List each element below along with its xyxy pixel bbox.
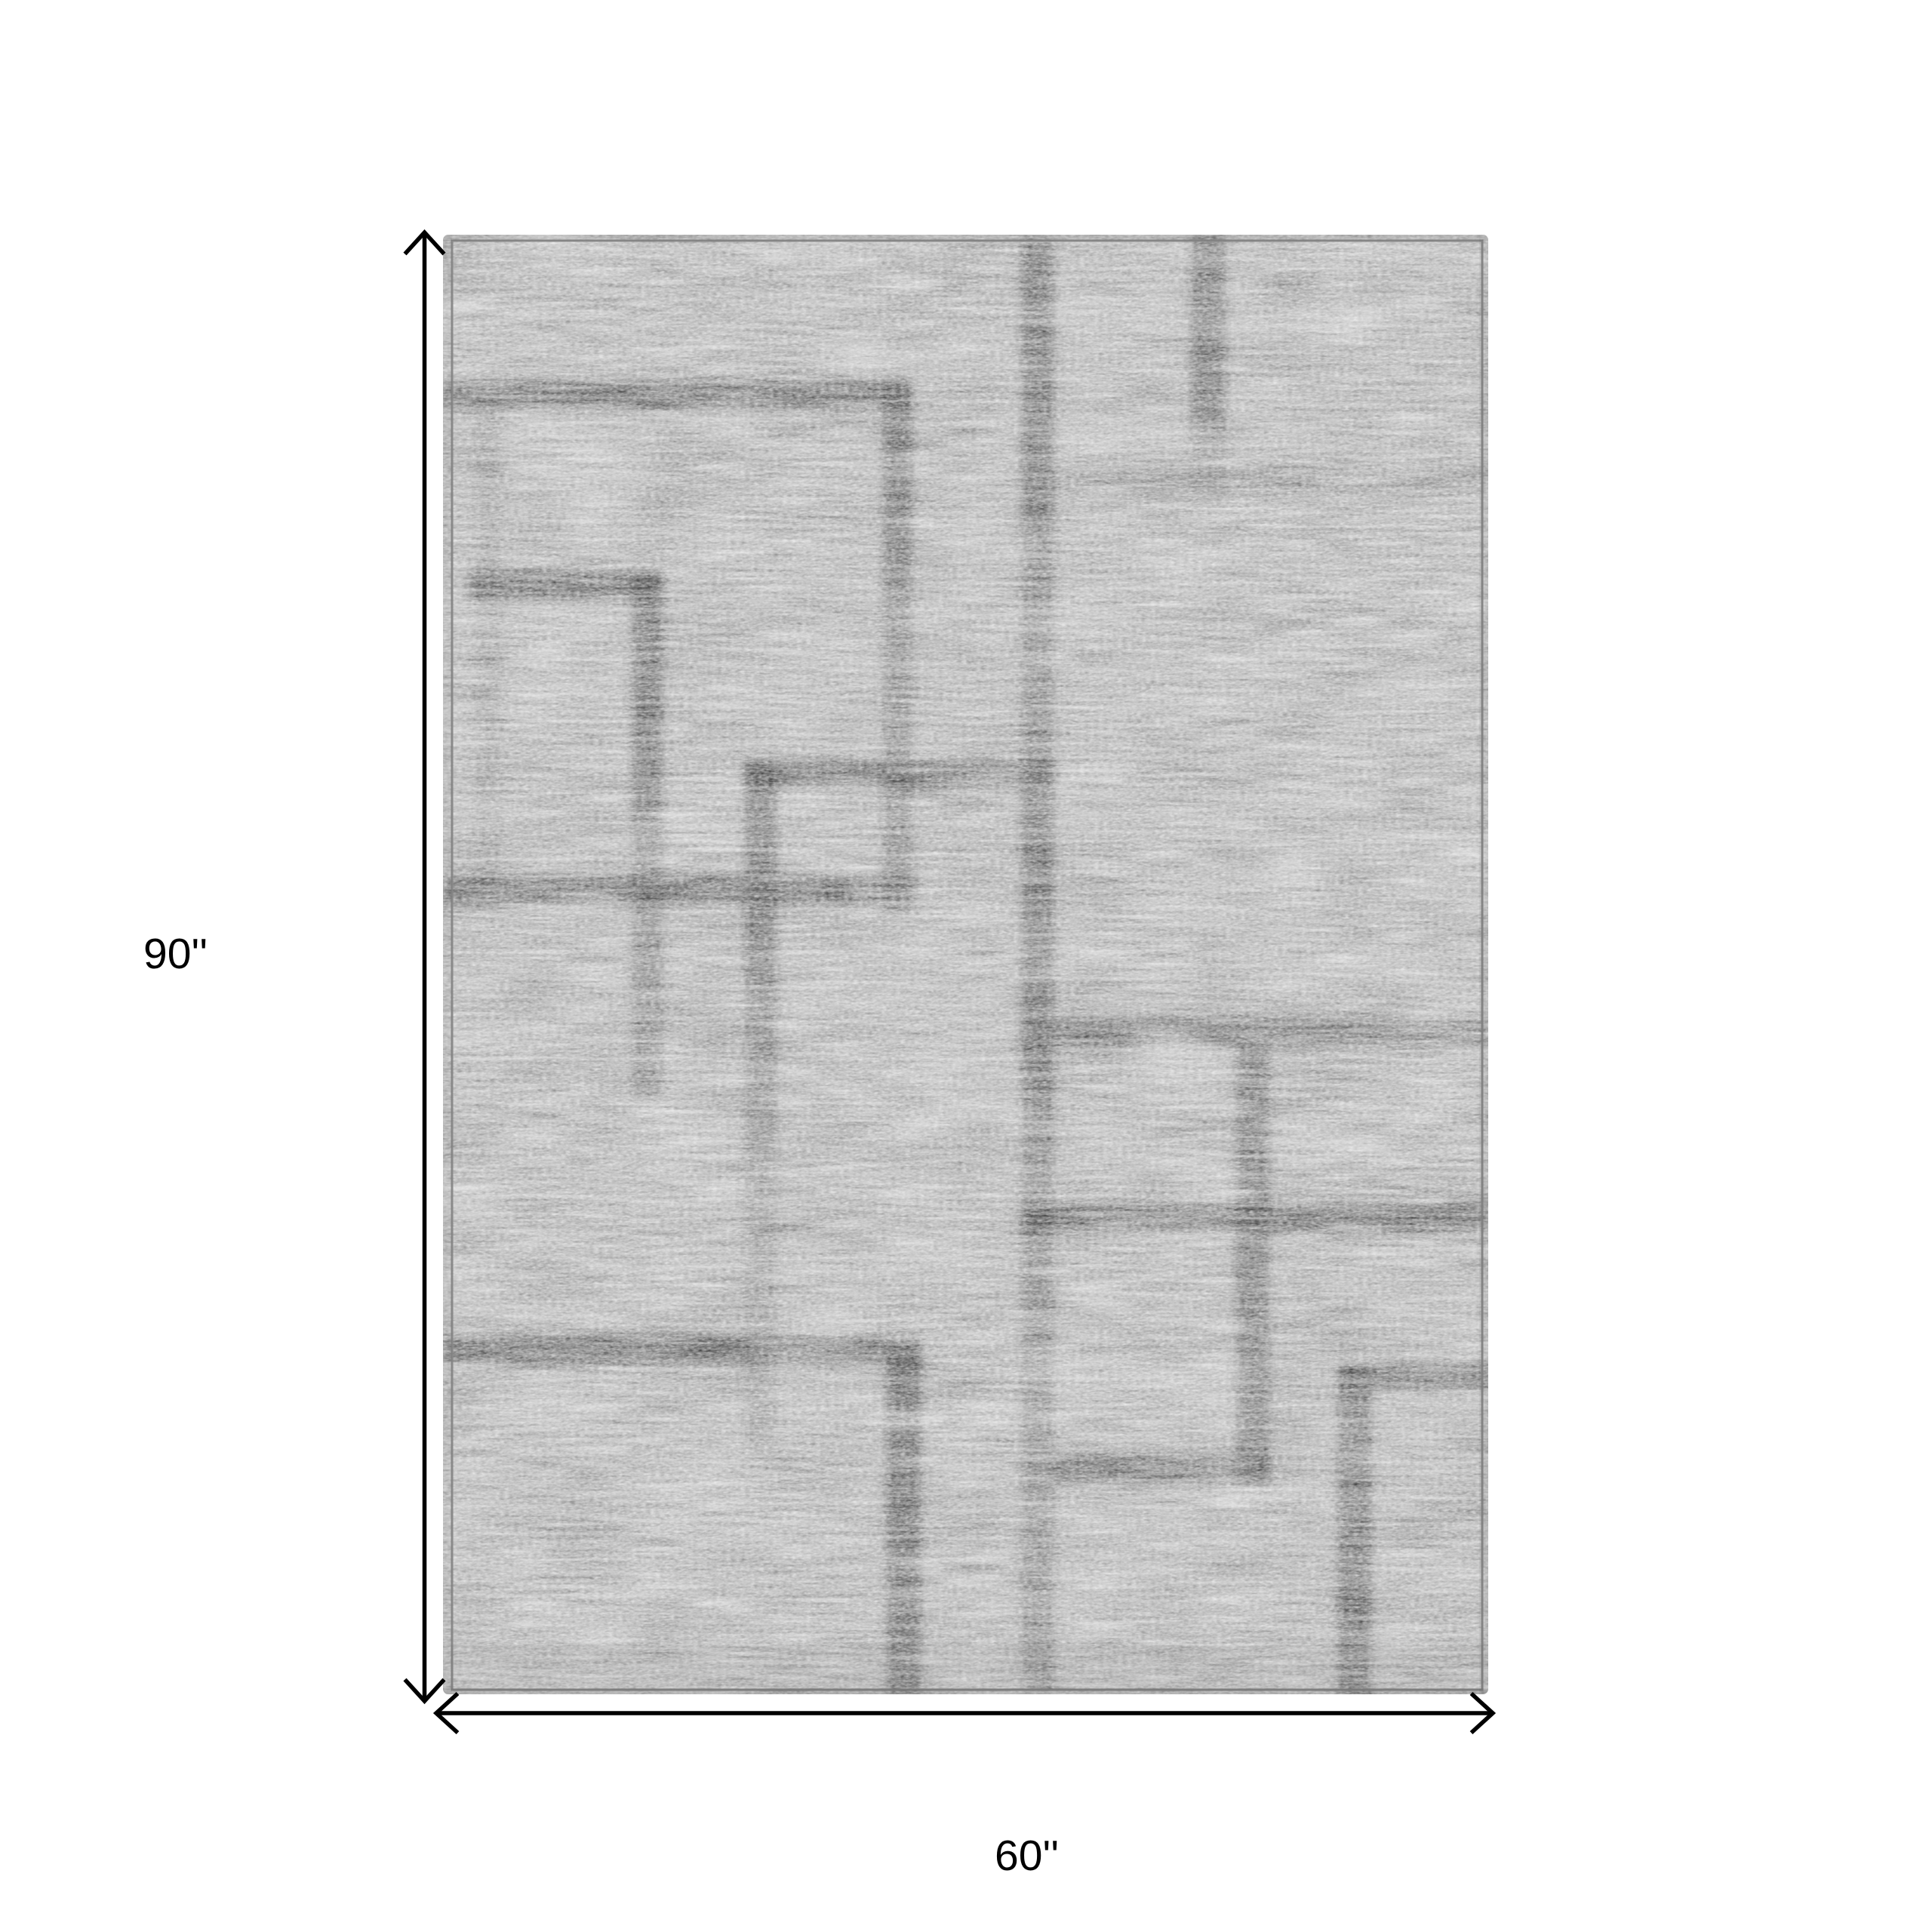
svg-text:60'': 60'' (995, 1832, 1059, 1880)
svg-text:90'': 90'' (143, 930, 208, 978)
